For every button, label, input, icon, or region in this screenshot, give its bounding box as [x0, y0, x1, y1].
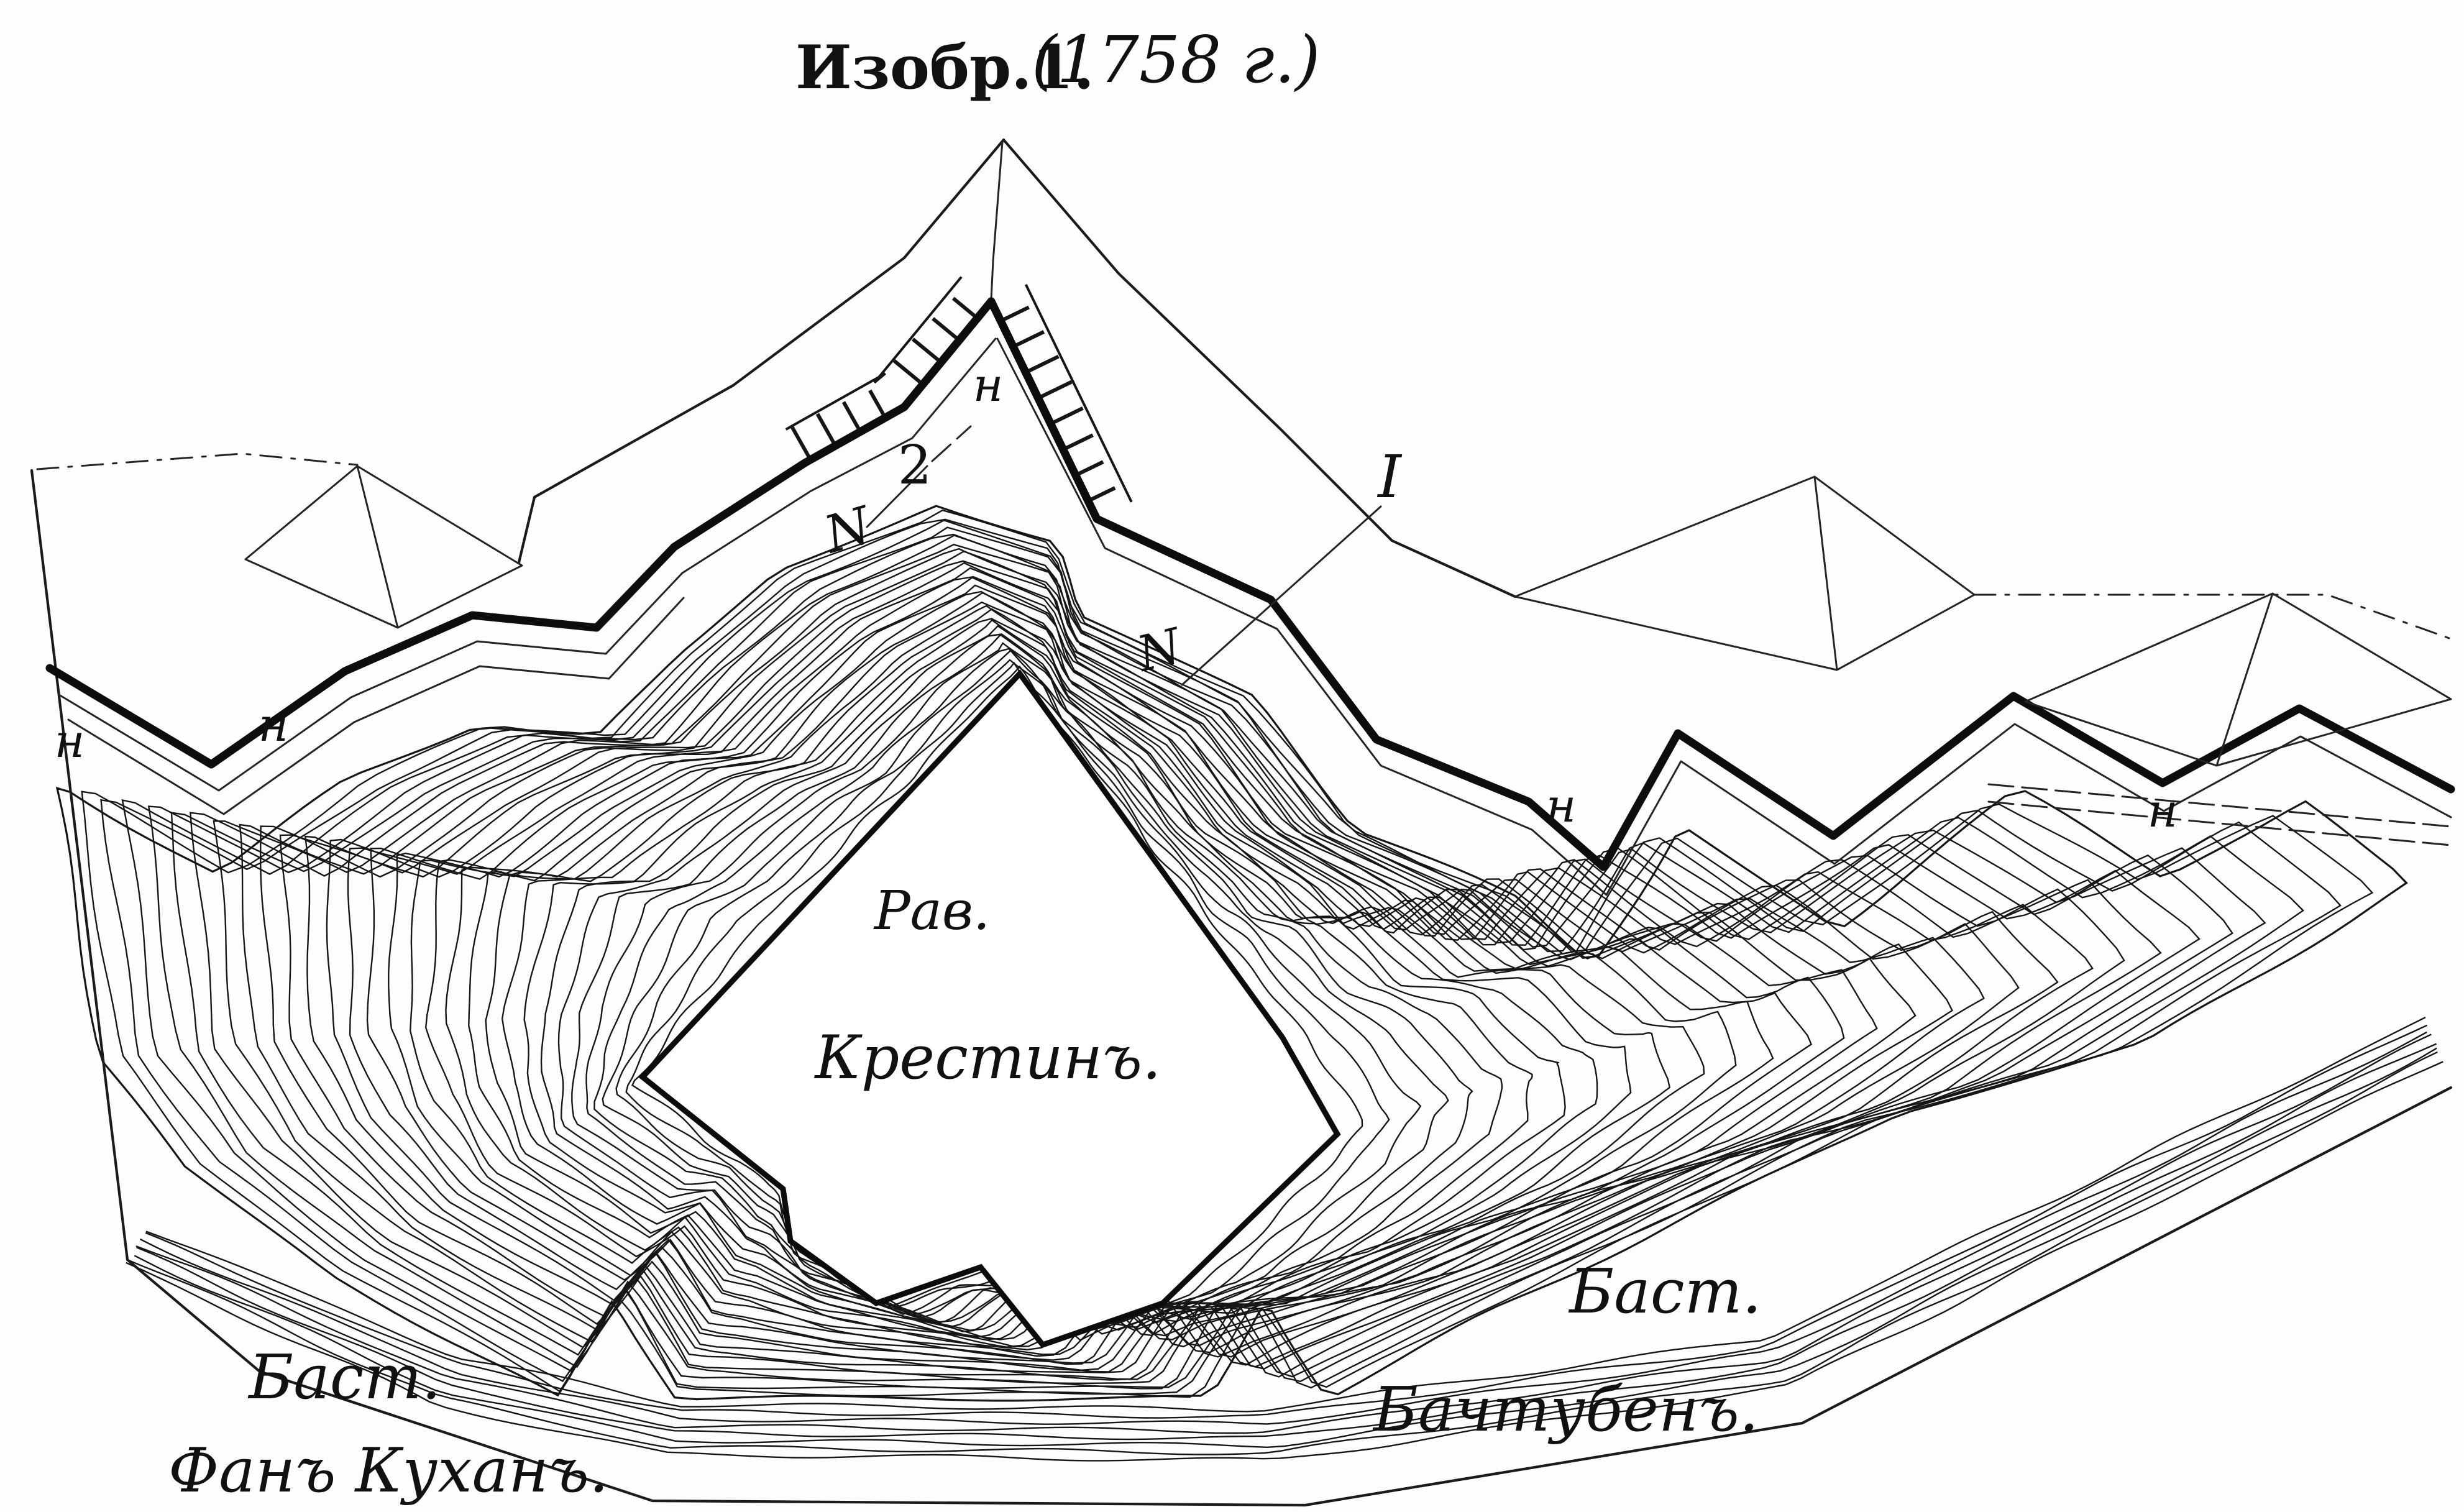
palisade-post	[1079, 462, 1103, 474]
glacis-mark-right-2: н	[2148, 784, 2178, 838]
palisade-post	[894, 360, 920, 382]
construction-line-left	[37, 454, 357, 469]
bastion-left-name-label: Фанъ Куханъ.	[168, 1436, 608, 1506]
apex-capital-line	[991, 142, 1002, 300]
triangle-left-line	[519, 140, 1004, 562]
ravelin-abbr-label: Рав.	[873, 880, 991, 942]
triangle-right-line	[1004, 140, 1515, 597]
counterscarp-line-right-b	[1989, 802, 2451, 845]
glacis-mark-left-1: н	[55, 715, 85, 768]
covered-way-line-right-1	[997, 339, 2451, 895]
palisade-post	[1017, 332, 1044, 345]
counterscarp-line-right-a	[1989, 784, 2451, 827]
figure-title-year: (1758 г.)	[1032, 22, 1321, 98]
bastion-right-name-label: Бачтубенъ.	[1372, 1375, 1759, 1446]
bastion-right-abbr-label: Баст.	[1568, 1257, 1761, 1327]
palisade-row	[786, 277, 1132, 502]
palisade-number-letter: N	[817, 495, 879, 566]
palisade-post	[1091, 488, 1115, 499]
palisade-post	[1029, 357, 1059, 371]
glacis-mark-top: н	[973, 359, 1004, 412]
palisade-post	[1054, 408, 1083, 423]
palisade-rail	[1026, 285, 1132, 502]
palisade-post	[870, 390, 884, 415]
palisade-post	[953, 298, 974, 316]
line-mark-leader	[1182, 506, 1381, 685]
palisade-number-leader-ext	[932, 426, 971, 461]
bastion-left-abbr-label: Баст.	[247, 1342, 441, 1413]
palisade-rail	[786, 277, 962, 429]
ravelin-name-label: Крестинъ.	[814, 1023, 1161, 1093]
outwork-redan-right-1	[1515, 477, 1974, 670]
line-mark-label: I	[1376, 443, 1403, 511]
left-border-line	[32, 470, 127, 1260]
fortification-plan-figure: Изобр.1. (1758 г.) Рав. Крестинъ. Баст. …	[0, 0, 2464, 1512]
palisade-post	[933, 319, 956, 338]
engraved-plan-page: Изобр.1. (1758 г.) Рав. Крестинъ. Баст. …	[0, 0, 2464, 1512]
outwork-redan-left	[245, 466, 522, 628]
construction-line-right	[1974, 595, 2451, 639]
palisade-post	[913, 339, 938, 360]
glacis-mark-left-2: н	[259, 699, 289, 752]
palisade-post	[1066, 435, 1092, 448]
palisade-post	[1004, 307, 1029, 319]
counterscarp-letter-label: N	[1131, 618, 1189, 683]
palisade-post	[792, 428, 808, 457]
palisade-post	[1042, 382, 1072, 396]
palisade-post	[817, 414, 833, 442]
palisade-number-value: 2	[898, 434, 932, 497]
rampart-right	[991, 301, 2451, 867]
palisade-post	[843, 402, 858, 429]
glacis-mark-right-1: н	[1546, 779, 1577, 833]
